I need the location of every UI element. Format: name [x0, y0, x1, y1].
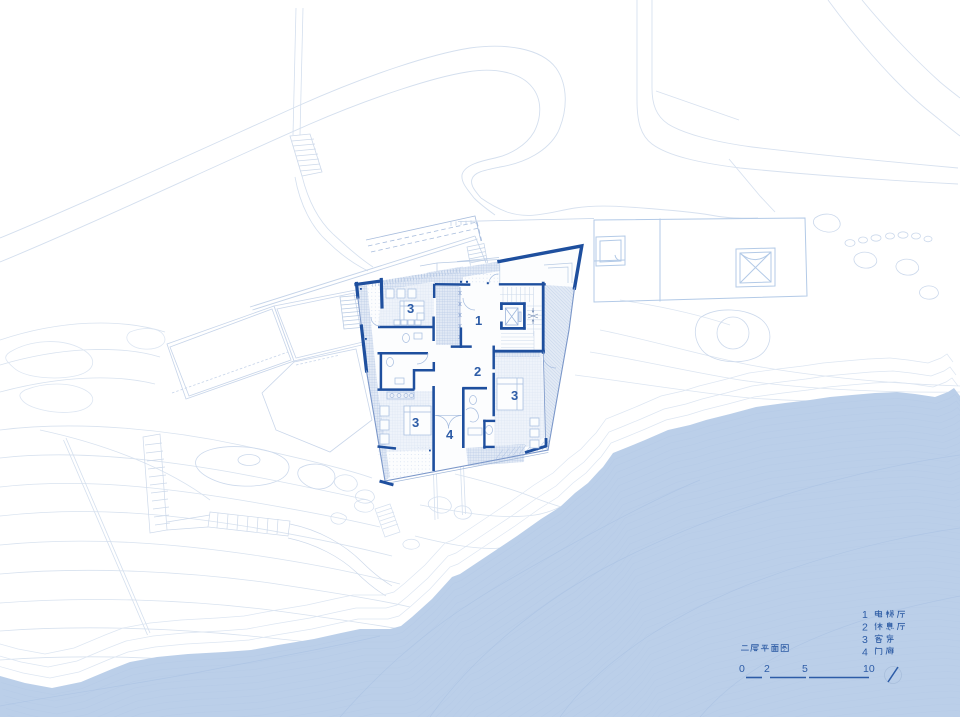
svg-text:5: 5 — [802, 663, 808, 675]
svg-text:0: 0 — [739, 663, 745, 675]
svg-text:2: 2 — [474, 364, 481, 379]
svg-text:1: 1 — [475, 313, 482, 328]
svg-text:3: 3 — [862, 634, 868, 646]
svg-text:3: 3 — [511, 388, 518, 403]
svg-text:3: 3 — [407, 301, 414, 316]
svg-text:2: 2 — [862, 622, 868, 634]
svg-text:4: 4 — [862, 647, 868, 659]
svg-text:4: 4 — [446, 427, 454, 442]
svg-text:1: 1 — [862, 609, 868, 621]
svg-text:3: 3 — [412, 415, 419, 430]
svg-text:2: 2 — [764, 663, 770, 675]
svg-text:10: 10 — [863, 663, 875, 675]
